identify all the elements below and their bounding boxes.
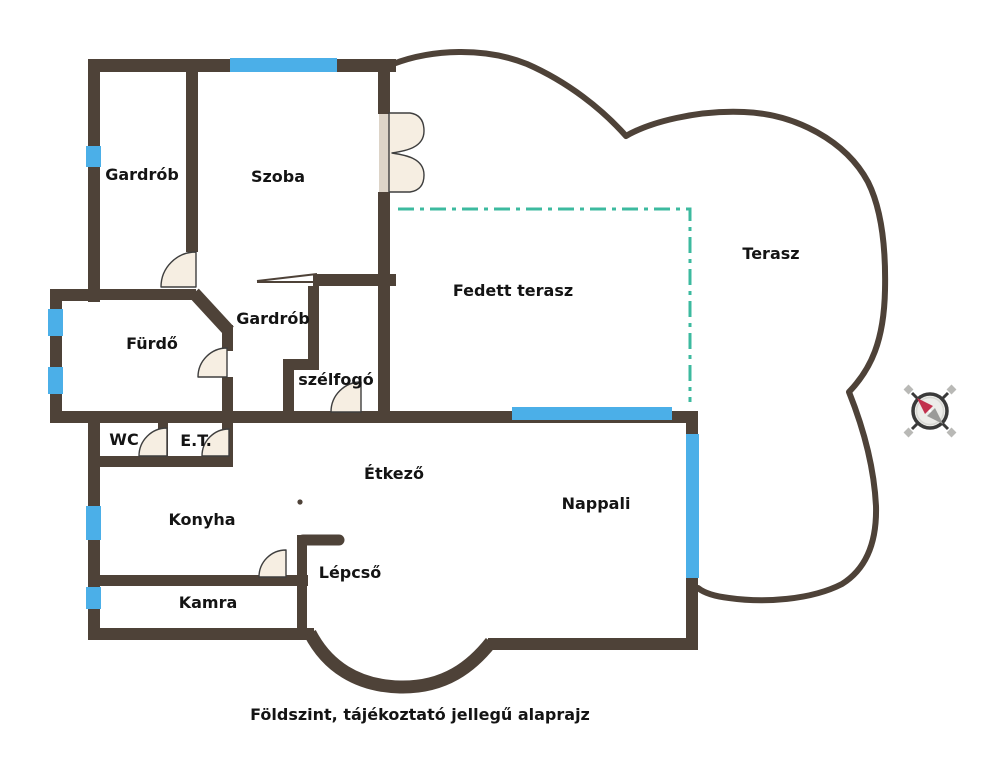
compass-tip-mark (904, 385, 914, 395)
window (686, 434, 699, 578)
wall-segment (88, 59, 100, 302)
wall-segment (88, 456, 232, 467)
plan-caption: Földszint, tájékoztató jellegű alaprajz (250, 705, 590, 724)
compass-tip-mark (947, 385, 957, 395)
column-dot (297, 499, 302, 504)
door-gardrob-top (161, 252, 196, 287)
room-label-fedett-terasz: Fedett terasz (453, 281, 573, 300)
room-label-wc: WC (109, 430, 138, 449)
compass-tip-mark (904, 428, 914, 438)
window (86, 506, 101, 540)
compass-tip-mark (947, 428, 957, 438)
wall-bay-curve (310, 633, 491, 687)
floor-plan-drawing: Gardrób Szoba Fürdő Gardrób szélfogó Fed… (0, 0, 1005, 768)
room-label-kamra: Kamra (179, 593, 238, 612)
compass-center-dot (929, 410, 932, 413)
room-label-et: E.T. (180, 431, 212, 450)
room-label-konyha: Konyha (168, 510, 235, 529)
door-furdo (198, 348, 227, 377)
window (230, 58, 337, 72)
window (86, 146, 101, 167)
wall-opening-marker (257, 274, 317, 281)
walls (50, 59, 698, 687)
wall-segment (308, 286, 319, 370)
compass-icon (904, 385, 957, 438)
terrace-outline (393, 52, 885, 600)
door-kamra (259, 550, 286, 577)
room-label-gardrob-top: Gardrób (105, 165, 179, 184)
wall-segment (283, 359, 294, 417)
window (512, 407, 672, 420)
room-label-terasz: Terasz (742, 244, 799, 263)
room-label-szelfogo: szélfogó (298, 370, 374, 389)
wall-segment (88, 289, 196, 300)
wall-segment (186, 59, 198, 252)
room-label-etkezo: Étkező (364, 464, 424, 483)
floor-plan-page: Gardrób Szoba Fürdő Gardrób szélfogó Fed… (0, 0, 1005, 768)
wall-segment (378, 59, 390, 114)
room-label-gardrob-mid: Gardrób (236, 309, 310, 328)
wall-segment (297, 535, 307, 635)
wall-segment (222, 325, 233, 351)
door-wc (139, 428, 167, 456)
room-label-szoba: Szoba (251, 167, 305, 186)
covered-terrace-boundary (398, 209, 690, 402)
door-szoba-double (389, 113, 424, 192)
room-label-nappali: Nappali (562, 494, 631, 513)
window (48, 309, 63, 336)
window (48, 367, 63, 394)
room-label-furdo: Fürdő (126, 334, 178, 353)
wall-segment (88, 628, 314, 640)
wall-segment (378, 192, 390, 423)
wall-segment (313, 274, 396, 286)
door-szoba-jamb (379, 114, 389, 192)
window (86, 587, 101, 609)
room-label-lepcso: Lépcső (319, 563, 382, 582)
wall-segment (488, 638, 698, 650)
